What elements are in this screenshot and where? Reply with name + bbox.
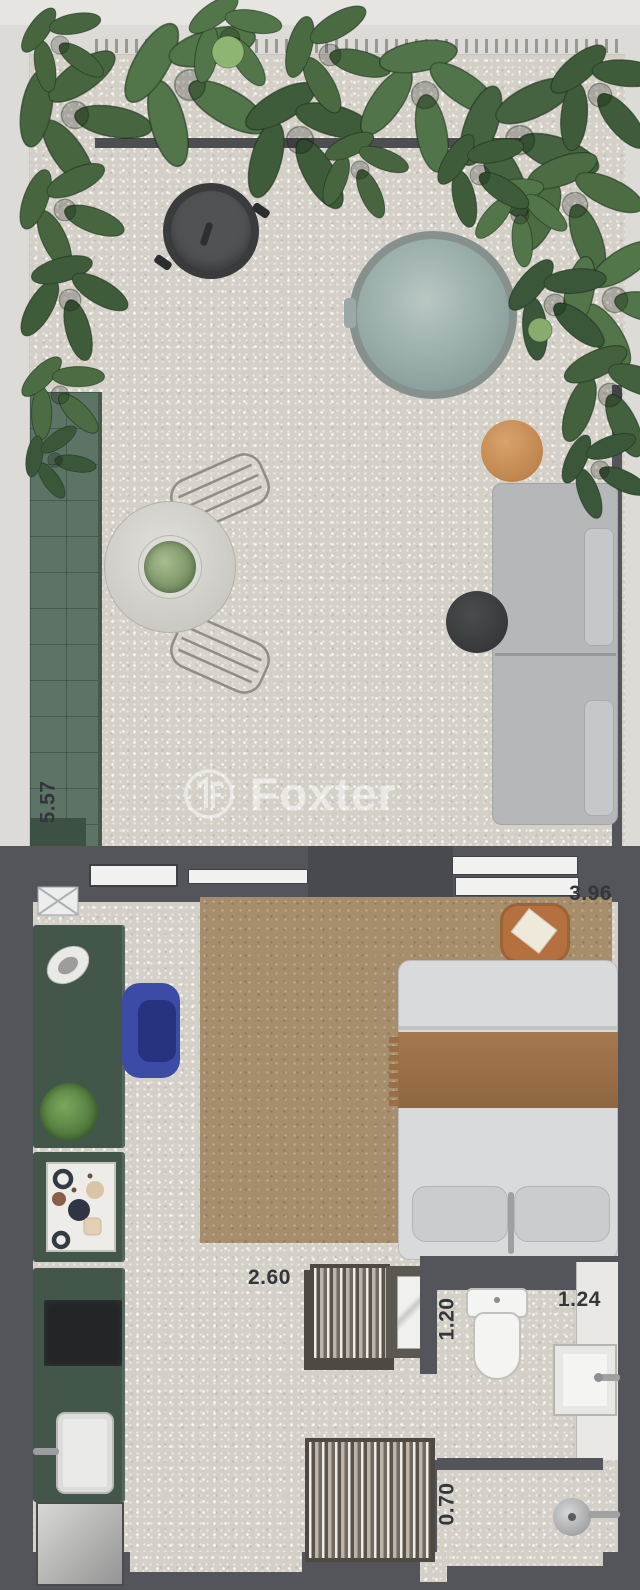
serving-tray [46, 1162, 116, 1252]
foxter-logo-icon [182, 767, 236, 821]
floor-plan: Foxter [0, 0, 640, 1590]
bed-blanket-fringe [389, 1034, 399, 1106]
cooktop [44, 1300, 122, 1366]
bed-sheet-fold [399, 1026, 617, 1030]
wardrobe-upper [310, 1264, 390, 1362]
bed-pillow-left [412, 1186, 508, 1242]
interior-wall-left [0, 846, 33, 1590]
watermark-text: Foxter [250, 767, 397, 821]
dining-table-plant [144, 541, 196, 593]
plant-fruit-1 [212, 36, 244, 68]
doormat [37, 886, 79, 916]
shower-arm [588, 1511, 620, 1518]
armchair-blue-seat [138, 1000, 176, 1062]
coffee-pouf [446, 591, 508, 653]
refrigerator [36, 1502, 124, 1586]
outdoor-sofa-back-cushion-1 [584, 528, 614, 646]
outdoor-sofa-seam [495, 653, 616, 656]
facade-wall-solid-block [308, 846, 453, 904]
interior-wall-right [618, 846, 640, 1590]
sliding-door-strip-1 [452, 856, 578, 875]
dim-label-bathroom: 1.24 [558, 1288, 618, 1312]
kitchen-sink [56, 1412, 114, 1494]
terrace-plants [0, 0, 640, 530]
kitchen-faucet [33, 1448, 59, 1455]
brand-watermark: Foxter [182, 750, 482, 838]
sideboard-plant [40, 1083, 98, 1141]
bed-pillow-gap [508, 1192, 514, 1254]
bathroom-faucet-arm [600, 1374, 620, 1381]
window-strip-2 [188, 869, 308, 884]
door-opening-bottom-left [130, 1552, 302, 1572]
dim-label-closet: 1.20 [434, 1288, 460, 1350]
bathroom-floor-edge [437, 1552, 603, 1566]
bathroom-faucet-knob [594, 1373, 603, 1382]
toilet-button [494, 1297, 500, 1303]
bed-blanket [398, 1032, 618, 1108]
dim-label-terrace: 5.57 [26, 766, 70, 838]
plant-fruit-2 [528, 318, 552, 342]
bed-pillow-right [514, 1186, 610, 1242]
window-strip-1 [89, 864, 178, 887]
dim-label-bedroom: 3.96 [548, 882, 612, 908]
shower-divider-wall [437, 1458, 603, 1470]
shower-head-center [568, 1513, 576, 1521]
dim-label-shower: 0.70 [434, 1472, 460, 1536]
outdoor-sofa-back-cushion-2 [584, 700, 614, 816]
dim-label-living: 2.60 [248, 1266, 310, 1292]
toilet-bowl [473, 1312, 521, 1380]
wardrobe-lower [305, 1438, 435, 1562]
